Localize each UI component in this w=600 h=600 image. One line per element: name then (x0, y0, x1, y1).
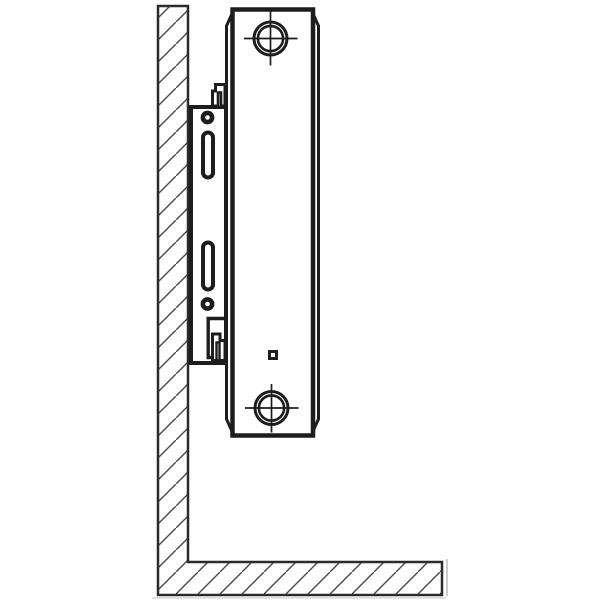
bracket-slot-top (203, 133, 213, 178)
radiator-profile (227, 10, 319, 436)
radiator-body (233, 10, 314, 436)
top-hook-inner-notch (218, 93, 221, 107)
vent-square-marker (270, 352, 277, 359)
bracket-top-hook (213, 85, 226, 107)
mounting-bracket (191, 85, 226, 364)
bottom-clip-inner-notch (217, 343, 220, 360)
radiator-mounting-diagram (0, 0, 600, 600)
bracket-slot-bottom (203, 243, 213, 290)
diagram-canvas (0, 0, 600, 600)
